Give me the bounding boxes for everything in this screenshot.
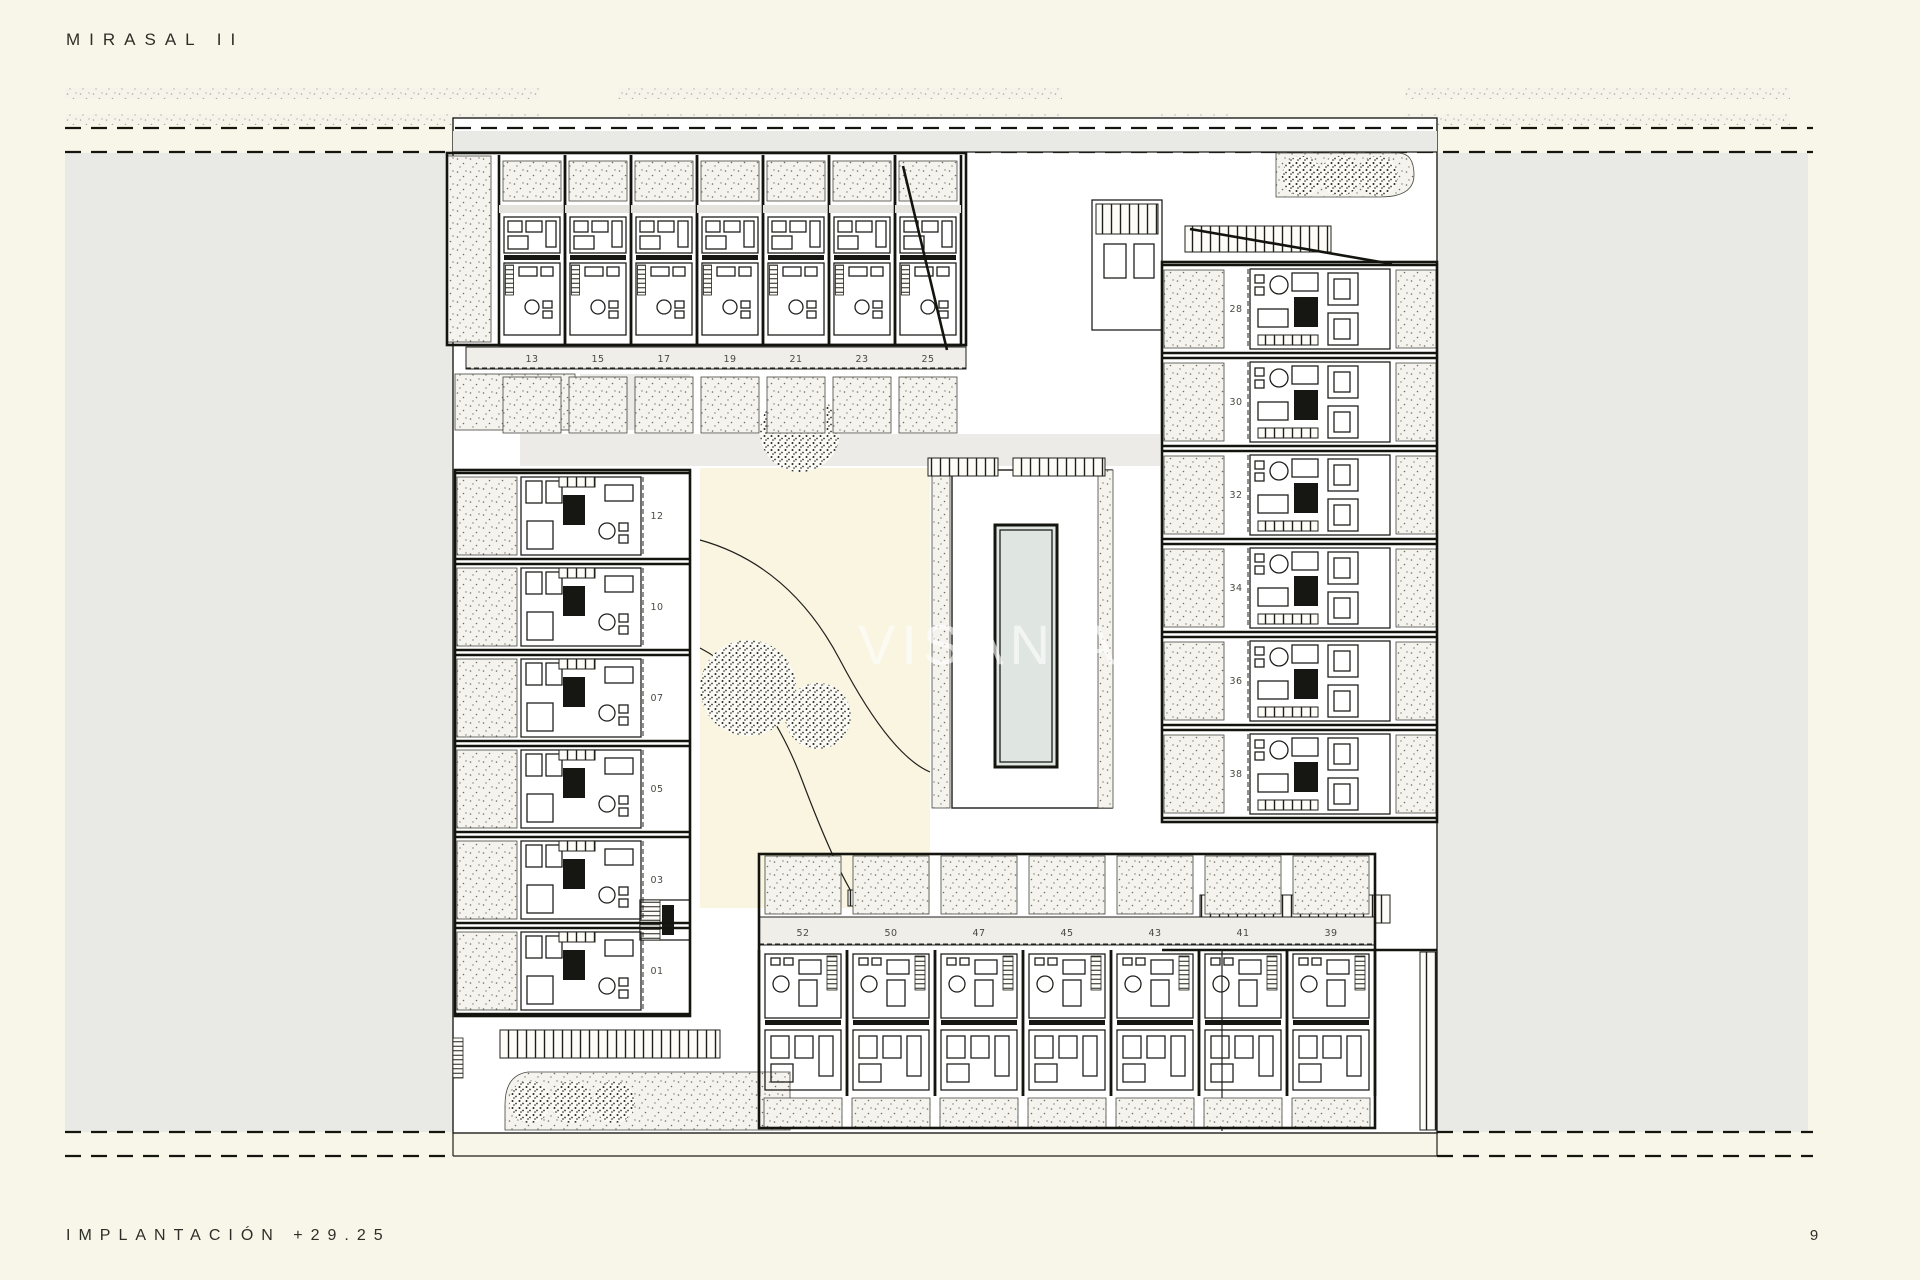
entry-garden: [447, 156, 491, 342]
watermark: VISANIA: [858, 613, 1121, 676]
top-number-band: [466, 347, 966, 369]
right-site-panel: [1437, 153, 1808, 1132]
unit-number: 17: [657, 354, 670, 365]
unit-number: 13: [525, 354, 538, 365]
pergola: [928, 458, 998, 476]
tree: [1358, 156, 1398, 196]
tree: [700, 640, 796, 736]
site-plan: 13151719212325 121007050301 283032343638…: [0, 0, 1920, 1280]
unit-number: 05: [650, 784, 663, 795]
unit-number: 30: [1229, 397, 1242, 408]
unit-number: 39: [1324, 928, 1337, 939]
tree: [551, 1081, 593, 1123]
unit-number: 19: [723, 354, 736, 365]
drawing-sheet: MIRASAL II: [0, 0, 1920, 1280]
page-number: 9: [1800, 1227, 1830, 1244]
unit-number: 45: [1060, 928, 1073, 939]
unit-number: 34: [1229, 583, 1242, 594]
top-access-band: [453, 131, 1437, 152]
pergola: [1013, 458, 1105, 476]
tree: [1282, 156, 1322, 196]
unit-number: 52: [796, 928, 809, 939]
unit-number: 38: [1229, 769, 1242, 780]
unit-number: 36: [1229, 676, 1242, 687]
tree: [1320, 156, 1360, 196]
unit-number: 10: [650, 602, 663, 613]
tree: [593, 1081, 635, 1123]
unit-number: 50: [884, 928, 897, 939]
tree: [785, 683, 851, 749]
unit-number: 43: [1148, 928, 1161, 939]
unit-number: 21: [789, 354, 802, 365]
unit-number: 25: [921, 354, 934, 365]
unit-number: 23: [855, 354, 868, 365]
unit-number: 01: [650, 966, 663, 977]
tree: [509, 1081, 551, 1123]
unit-number: 07: [650, 693, 663, 704]
unit-number: 15: [591, 354, 604, 365]
unit-number: 47: [972, 928, 985, 939]
unit-number: 41: [1236, 928, 1249, 939]
unit-number: 28: [1229, 304, 1242, 315]
site-limit-lines-bottom: [65, 1132, 1813, 1156]
unit-number: 03: [650, 875, 663, 886]
pergola: [1185, 226, 1331, 252]
sheet-footer-label: IMPLANTACIÓN +29.25: [66, 1227, 391, 1245]
unit-number: 12: [650, 511, 663, 522]
unit-number: 32: [1229, 490, 1242, 501]
pergola: [500, 1030, 720, 1058]
left-site-panel: [65, 153, 453, 1132]
